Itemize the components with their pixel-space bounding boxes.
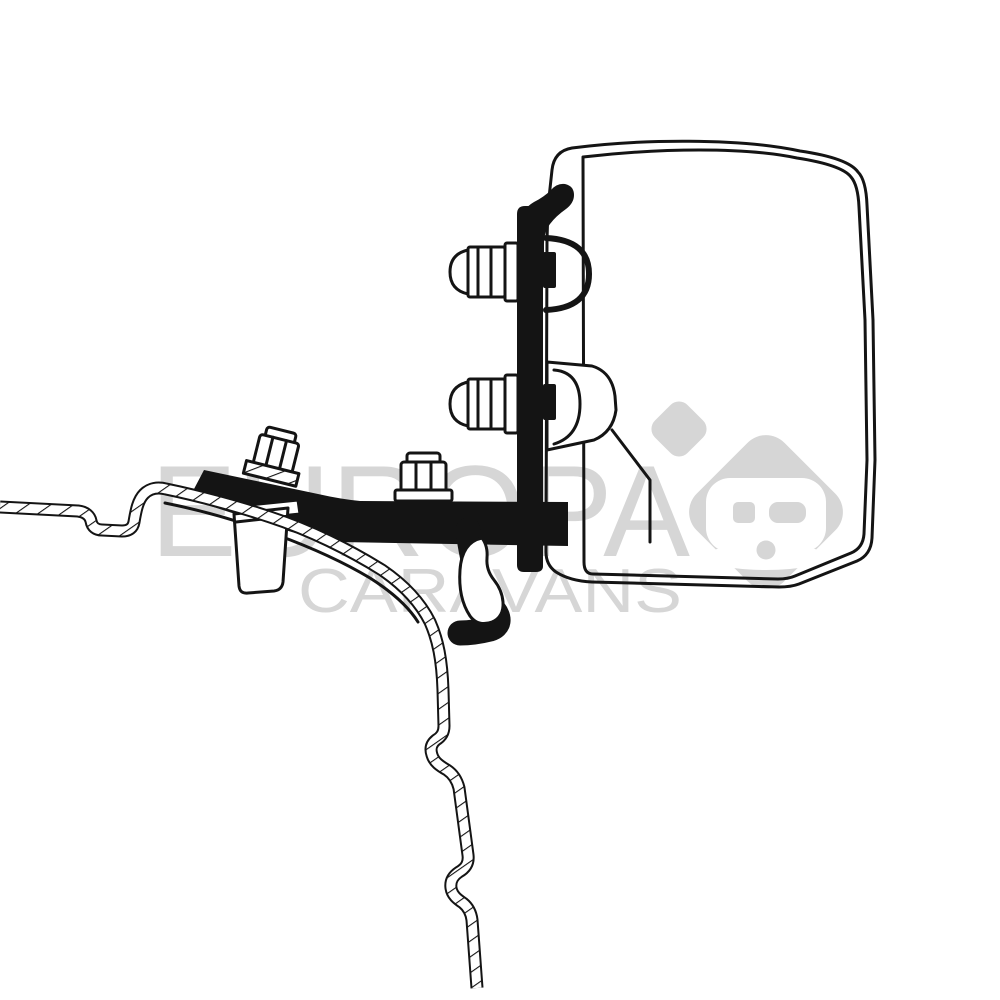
product-illustration: EUROPA CARAVANS (0, 0, 1000, 1000)
caravan-window-left (733, 502, 755, 523)
caravan-wheel (757, 541, 776, 560)
washer (505, 243, 518, 301)
washer (505, 375, 518, 433)
drawing-canvas: EUROPA CARAVANS (0, 0, 1000, 1000)
dome-nut-lower (450, 375, 518, 433)
caravan-icon (704, 478, 828, 570)
dome-nut-upper (450, 243, 518, 301)
caravan-window-right (769, 502, 806, 523)
